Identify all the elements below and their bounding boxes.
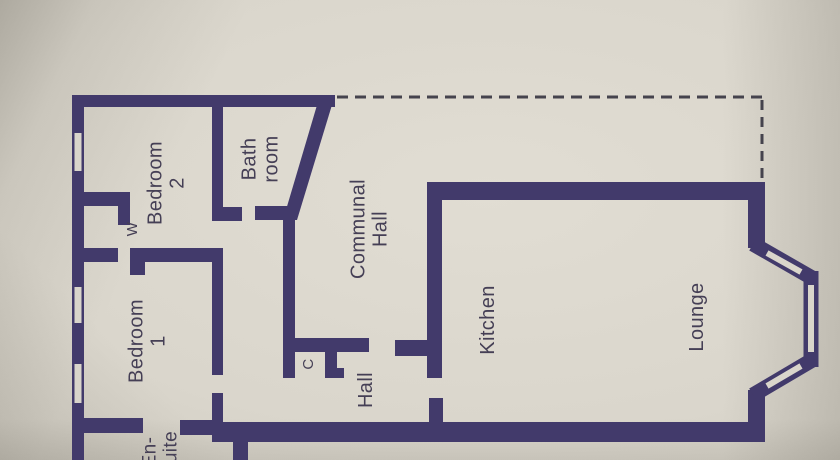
room-label-lounge: Lounge [687,282,709,351]
room-label-line: Bath [239,135,261,182]
wall-kitchen-left [427,182,442,378]
room-label-line: Hall [356,372,378,408]
room-label-line: Lounge [687,282,709,351]
wall-bathroom-diagonal [283,95,335,220]
wall-ensuite-right [233,442,248,460]
wall-cupboard-left-stub [283,352,295,378]
room-label-communal-hall: Communal Hall [348,179,391,279]
window-bedroom1-upper [75,287,82,323]
room-label-line: Communal [348,179,370,279]
room-label-line: C [301,358,317,369]
room-label-ensuite: En- suite [140,431,181,460]
window-bedroom1-lower [75,364,82,403]
room-label-line: 2 [167,141,189,225]
wall-cupboard-foot [325,368,344,378]
room-label-kitchen: Kitchen [478,285,500,355]
wall-ensuite-door-jamb [180,420,212,435]
bay-window [748,198,814,424]
wall-wardrobe-top [84,192,118,206]
window-bedroom2 [75,133,82,171]
room-label-bedroom-2: Bedroom 2 [145,141,188,225]
room-label-line: Bedroom [126,299,148,383]
room-label-hall: Hall [356,372,378,408]
wall-top-exterior [72,95,335,107]
room-label-line: En- [140,431,161,460]
room-label-line: suite [161,431,182,460]
wall-bedroom1-right [212,253,223,375]
room-label-line: 1 [148,299,170,383]
wall-bathroom-door-jamb-left [223,207,242,221]
room-label-cupboard: C [301,358,317,369]
wall-ensuite-top [82,418,143,433]
wall-bedrooms-divider-left [82,248,118,262]
wall-kitchen-lounge-top [427,182,765,200]
wall-bedrooms-divider-right [130,248,223,262]
wall-bottom-exterior [212,422,765,442]
room-label-line: room [261,135,283,182]
wall-bedrooms-divider-foot [130,262,145,275]
room-label-line: Kitchen [478,285,500,355]
room-label-line: Hall [370,179,392,279]
room-label-line: W [125,222,141,237]
room-label-line: Bedroom [145,141,167,225]
wall-hall-top [283,338,369,352]
wall-wardrobe-side [118,192,130,225]
wall-kitchen-door-stub [429,398,443,426]
room-label-wardrobe: W [125,222,141,237]
floorplan-photo: Bedroom 2 Bath room Communal Hall Bedroo… [0,0,840,460]
wall-bedroom2-bathroom-divider [212,107,223,221]
communal-boundary-dashed [337,97,762,184]
wall-hall-communal-divider [283,206,295,352]
wall-bedroom1-right-lower [212,393,223,424]
room-label-bedroom-1: Bedroom 1 [126,299,169,383]
room-label-bathroom: Bath room [239,135,282,182]
wall-entrance-jamb [395,340,428,356]
